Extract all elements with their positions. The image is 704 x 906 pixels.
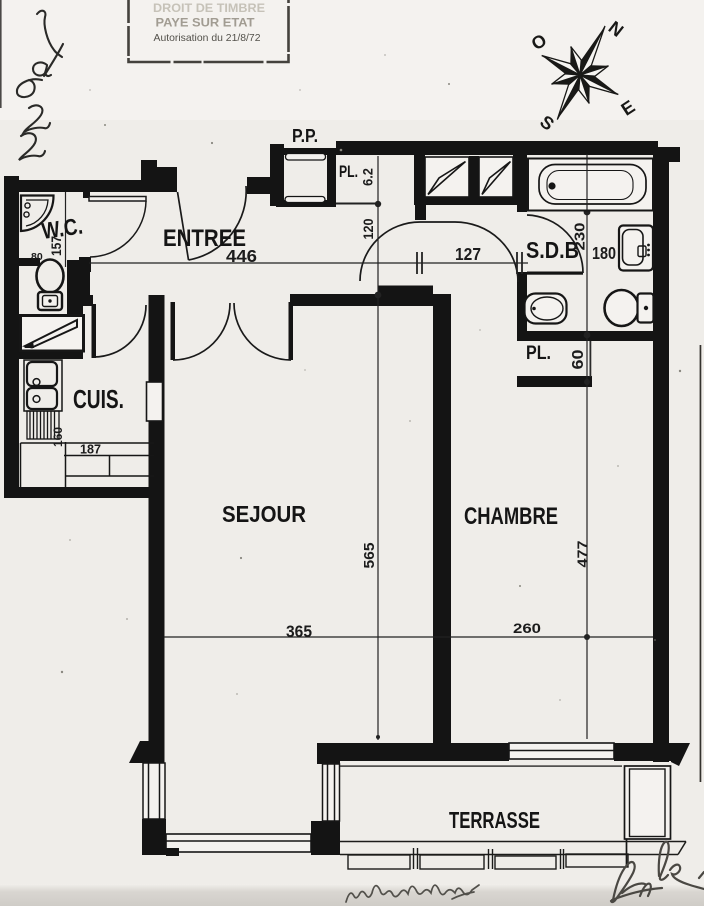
- svg-text:60: 60: [570, 350, 587, 370]
- svg-text:PL.: PL.: [339, 162, 358, 181]
- svg-text:365: 365: [286, 622, 312, 641]
- svg-text:127: 127: [455, 244, 481, 264]
- svg-text:DROIT DE TIMBRE: DROIT DE TIMBRE: [153, 1, 265, 15]
- svg-text:P.P.: P.P.: [292, 126, 318, 146]
- svg-text:6.2: 6.2: [361, 168, 376, 186]
- svg-text:PL.: PL.: [526, 343, 551, 364]
- svg-text:160: 160: [53, 427, 65, 447]
- svg-text:187: 187: [80, 443, 101, 457]
- svg-text:CUIS.: CUIS.: [73, 384, 124, 414]
- svg-text:565: 565: [362, 543, 378, 569]
- svg-text:230: 230: [572, 223, 589, 251]
- svg-text:SEJOUR: SEJOUR: [222, 501, 306, 527]
- svg-text:CHAMBRE: CHAMBRE: [464, 503, 558, 530]
- svg-text:260: 260: [513, 620, 541, 636]
- svg-text:PAYE SUR ETAT: PAYE SUR ETAT: [156, 16, 256, 30]
- svg-text:180: 180: [592, 243, 616, 263]
- svg-text:120: 120: [360, 218, 376, 239]
- svg-text:Autorisation du 21/8/72: Autorisation du 21/8/72: [154, 32, 261, 44]
- svg-text:80: 80: [31, 251, 43, 263]
- svg-text:446: 446: [226, 246, 257, 266]
- svg-text:477: 477: [576, 541, 592, 568]
- svg-text:TERRASSE: TERRASSE: [449, 807, 540, 833]
- svg-text:157: 157: [49, 236, 64, 256]
